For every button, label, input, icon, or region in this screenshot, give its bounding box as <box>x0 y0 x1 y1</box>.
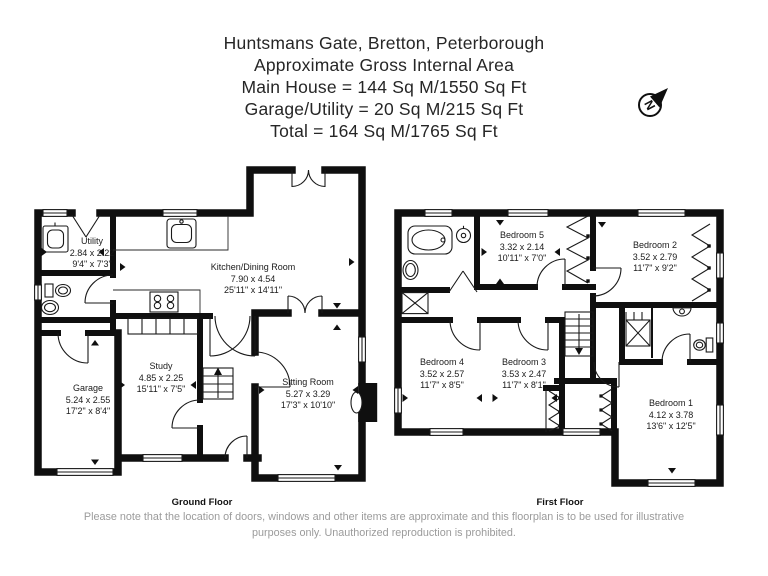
utility-sink-icon <box>43 223 68 253</box>
disclaimer-text: Please note that the location of doors, … <box>0 509 768 541</box>
room-label-sitting-room: Sitting Room 5.27 x 3.29 17'3" x 10'10" <box>281 377 335 412</box>
shower-icon <box>626 312 650 346</box>
room-label-bedroom-5: Bedroom 5 3.32 x 2.14 10'11" x 7'0" <box>498 230 547 265</box>
ground-floor-plan <box>35 170 378 481</box>
wc-toilet-icon <box>45 284 71 297</box>
room-label-bedroom-1: Bedroom 1 4.12 x 3.78 13'6" x 12'5" <box>646 398 695 433</box>
hob-icon <box>150 292 178 312</box>
floorplan-page: Huntsmans Gate, Bretton, Peterborough Ap… <box>0 0 768 576</box>
bathroom-basin-icon <box>457 226 471 243</box>
bath-icon <box>408 226 452 254</box>
stairs-down-icon <box>565 312 593 356</box>
study-closet <box>128 318 198 334</box>
pedestal-basin-icon <box>403 261 418 280</box>
room-label-bedroom-2: Bedroom 2 3.52 x 2.79 11'7" x 9'2" <box>633 240 678 275</box>
floorplan-drawing: N <box>0 0 768 576</box>
airing-cupboard-icon <box>402 293 428 314</box>
wc-basin-icon <box>42 301 59 315</box>
ensuite-basin-icon <box>673 308 691 316</box>
ground-floor-caption: Ground Floor <box>172 497 233 508</box>
kitchen-sink-icon <box>167 219 196 248</box>
north-arrow-icon: N <box>639 88 668 116</box>
room-label-bedroom-4: Bedroom 4 3.52 x 2.57 11'7" x 8'5" <box>420 357 465 392</box>
room-label-garage: Garage 5.24 x 2.55 17'2" x 8'4" <box>66 383 111 418</box>
room-label-kitchen-dining: Kitchen/Dining Room 7.90 x 4.54 25'11" x… <box>211 262 296 297</box>
room-label-study: Study 4.85 x 2.25 15'11" x 7'5" <box>137 361 186 396</box>
first-floor-caption: First Floor <box>537 497 584 508</box>
ensuite-toilet-icon <box>694 338 713 352</box>
room-label-utility: Utility 2.84 x 2.22 9'4" x 7'3" <box>70 236 115 271</box>
room-label-bedroom-3: Bedroom 3 3.53 x 2.47 11'7" x 8'1" <box>502 357 547 392</box>
stairs-up-icon <box>203 368 233 400</box>
